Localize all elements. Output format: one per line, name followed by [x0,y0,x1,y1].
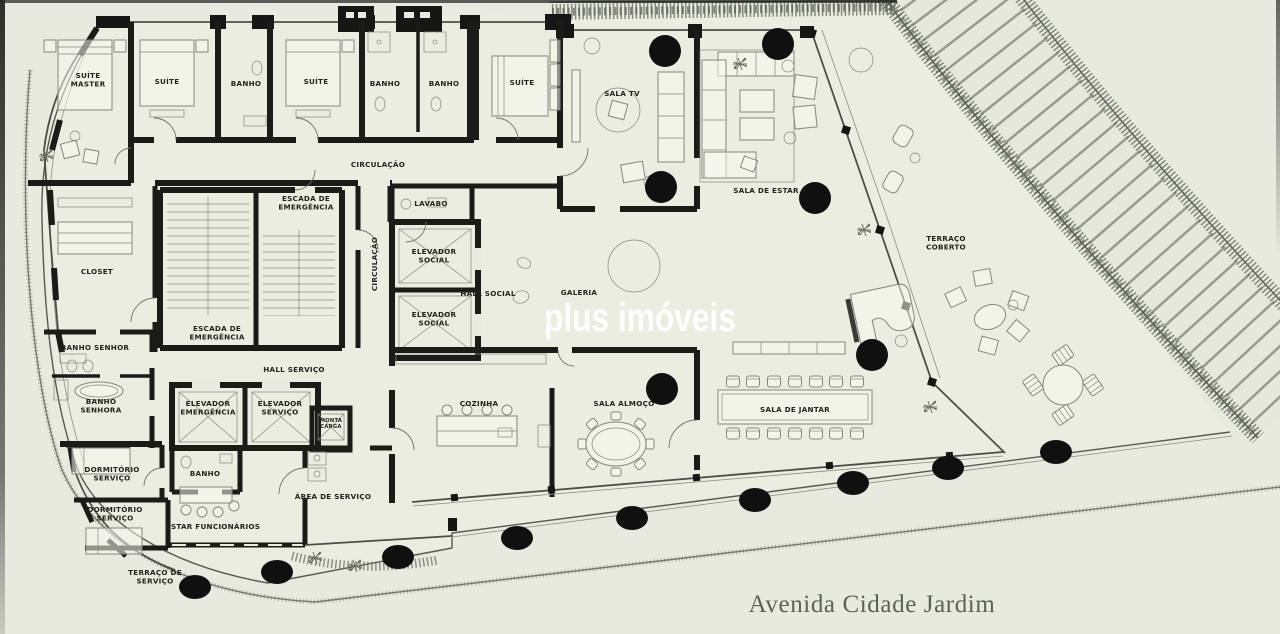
breakfast-table [586,422,646,466]
street-name: Avenida Cidade Jardim [749,591,996,618]
room-label: BANHO [370,79,400,88]
bed [140,40,194,106]
room-label: CIRCULAÇÃO [370,237,379,291]
structural-column [616,506,648,530]
room-label: BANHO [429,79,459,88]
room-label: SUÍTE [304,77,329,86]
structural-column [799,182,831,214]
room-label: BANHO SENHOR [61,343,130,352]
room-label: ELEVADOREMERGÊNCIA [180,399,236,417]
room-label: SALA ALMOÇO [594,399,655,408]
room-label: ESTAR FUNCIONÁRIOS [166,522,260,531]
room-label: ÁREA DE SERVIÇO [295,492,371,501]
floor-plan-page: SUÍTEMASTERSUÍTEBANHOSUÍTEBANHOBANHOSUÍT… [0,0,1280,634]
room-label: CIRCULAÇÃO [351,160,405,169]
room-label: ESCADA DEEMERGÊNCIA [278,194,334,212]
room-label: SUÍTE [155,77,180,86]
structural-column [646,373,678,405]
structural-column [645,171,677,203]
terrace-table [1043,365,1083,405]
structural-column [179,575,211,599]
structural-column [382,545,414,569]
room-label: ELEVADORSERVIÇO [258,399,303,417]
scan-edge-top [0,0,897,3]
room-label: BANHO [231,79,261,88]
structural-column [1040,440,1072,464]
room-label: HALL SERVIÇO [263,365,324,374]
structural-column [932,456,964,480]
room-label: ESCADA DEEMERGÊNCIA [189,324,245,342]
structural-column [261,560,293,584]
structural-column [649,35,681,67]
room-label: HALL SOCIAL [460,289,516,298]
room-label: MONTACARGA [320,418,342,430]
room-label: BANHO [190,469,220,478]
room-label: TERRAÇOCOBERTO [926,234,966,252]
room-label: SUÍTE [510,78,535,87]
scan-edge-left [0,0,5,634]
scan-edge-right [1276,0,1280,260]
room-label: SALA DE JANTAR [760,405,830,414]
structural-column [856,339,888,371]
floor-plan-svg: SUÍTEMASTERSUÍTEBANHOSUÍTEBANHOBANHOSUÍT… [0,0,1280,634]
structural-column [501,526,533,550]
room-label: SUÍTEMASTER [71,71,106,89]
tv-cabinet [572,70,580,142]
structural-column [837,471,869,495]
sofa [658,72,684,162]
room-label: BANHOSENHORA [80,397,121,415]
structural-column [739,488,771,512]
room-label: SALA TV [604,89,640,98]
watermark-text: plus imóveis [544,296,736,340]
room-label: COZINHA [460,399,499,408]
room-label: LAVABO [414,199,447,208]
room-label: CLOSET [81,267,113,276]
structural-column [762,28,794,60]
closet-shelves [58,222,132,254]
room-label: SALA DE ESTAR [733,186,799,195]
